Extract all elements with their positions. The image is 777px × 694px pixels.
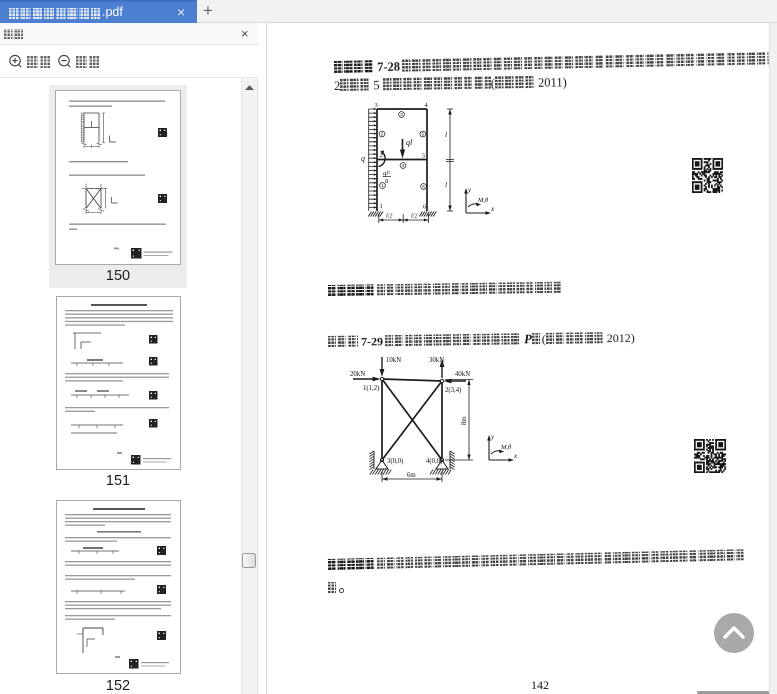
svg-text:x: x: [513, 452, 518, 460]
svg-text:y: y: [467, 186, 472, 194]
svg-text:5: 5: [422, 153, 425, 160]
svg-text:30kN: 30kN: [429, 357, 444, 364]
svg-text:ql²: ql²: [383, 170, 391, 177]
svg-text:20kN: 20kN: [350, 371, 365, 378]
svg-text:ql: ql: [406, 138, 413, 147]
svg-text:M,θ: M,θ: [477, 197, 489, 204]
svg-text:M,θ: M,θ: [500, 444, 512, 451]
svg-text:3: 3: [400, 112, 403, 117]
svg-text:8m: 8m: [461, 416, 468, 425]
svg-text:10kN: 10kN: [386, 357, 401, 364]
svg-text:y: y: [490, 433, 495, 441]
svg-text:1: 1: [381, 183, 384, 188]
svg-text:6m: 6m: [407, 472, 416, 479]
svg-text:3(0,0): 3(0,0): [387, 458, 403, 465]
svg-text:40kN: 40kN: [455, 371, 470, 378]
svg-text:1(1,2): 1(1,2): [363, 385, 379, 392]
svg-text:3: 3: [375, 102, 378, 109]
svg-text:5: 5: [422, 132, 425, 137]
svg-text:l: l: [445, 130, 447, 139]
svg-text:l/2: l/2: [386, 214, 392, 220]
svg-text:q: q: [361, 154, 365, 163]
svg-text:6: 6: [422, 184, 425, 189]
svg-text:4: 4: [402, 163, 405, 168]
svg-text:2(3,4): 2(3,4): [445, 387, 461, 394]
svg-text:l: l: [445, 180, 447, 189]
svg-text:x: x: [490, 205, 495, 213]
svg-text:8: 8: [385, 178, 388, 185]
svg-text:l/2: l/2: [411, 214, 417, 220]
svg-text:4: 4: [425, 102, 429, 109]
svg-text:2: 2: [381, 132, 384, 137]
svg-text:2: 2: [380, 152, 383, 159]
svg-text:1: 1: [380, 203, 383, 210]
